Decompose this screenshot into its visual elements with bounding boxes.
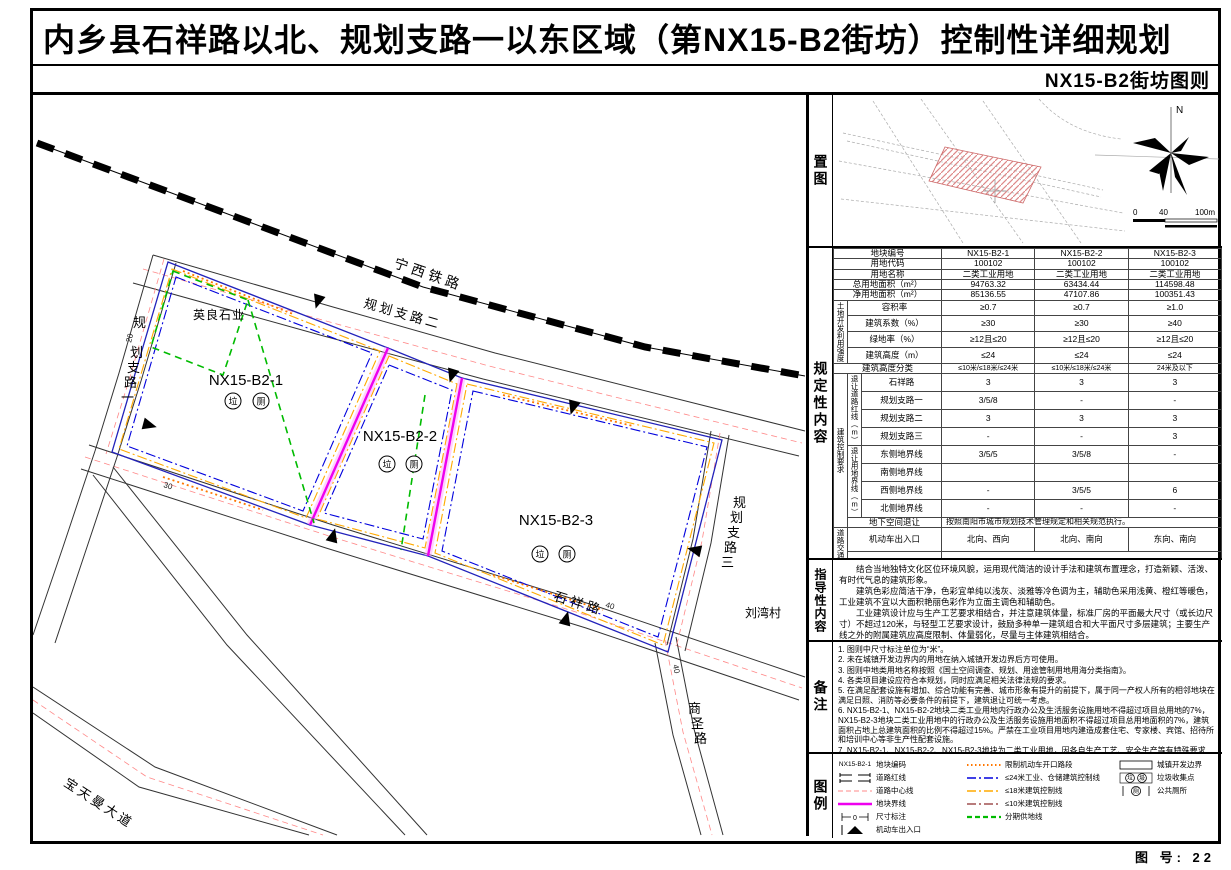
right-panel: 置图 [806, 95, 1222, 836]
table-cell: - [1035, 392, 1128, 410]
location-highlight-area [929, 147, 1041, 203]
table-cell: ≥40 [1128, 316, 1221, 332]
section-regulatory: 规定性内容 地块编号 NX15-B2-1 NX15-B2-2 NX15-B2-3 [809, 248, 1222, 560]
table-row: 建筑高度（m） ≤24 ≤24 ≤24 [834, 347, 1222, 363]
scale-bar: 0 40 100m [1133, 208, 1217, 228]
table-cell: 按照南阳市城市规划技术管理规定和相关规范执行。 [942, 552, 1222, 558]
table-cell [1128, 464, 1221, 482]
table-cell: - [942, 428, 1035, 446]
table-cell: 3/5/5 [1035, 482, 1128, 500]
table-cell: 二类工业用地 [1035, 269, 1128, 279]
table-cell: 63434.44 [1035, 280, 1128, 290]
table-cell: ≤24 [1035, 347, 1128, 363]
plot-boundary-icon [837, 801, 873, 807]
legend-item: 城镇开发边界 [1118, 758, 1220, 771]
row-label: 建筑高度分类 [834, 363, 942, 373]
row-label: 石祥路 [862, 374, 942, 392]
table-row: 建筑控制要求 退让道路红线（m） 石祥路 3 3 3 [834, 374, 1222, 392]
table-row: 停车位配建 按照南阳市城市规划技术管理规定和相关规范执行。 [834, 552, 1222, 558]
table-cell: ≤10米/≤18米/≤24米 [1035, 363, 1128, 373]
table-cell: 100102 [1128, 259, 1221, 269]
guidance-paragraph: 结合当地独特文化区位环境风貌，运用现代简洁的设计手法和建筑布置理念，打造新颖、活… [839, 564, 1216, 586]
svg-text:商: 商 [688, 701, 701, 716]
svg-text:NX15-B2-2: NX15-B2-2 [363, 428, 437, 445]
row-label: 东侧地界线 [862, 446, 942, 464]
vehicle-entrance-icon [837, 825, 873, 835]
table-row: 土地开发利用强度 容积率 ≥0.7 ≥0.7 ≥1.0 [834, 300, 1222, 316]
toilet-icon: 厕 [256, 397, 265, 407]
table-cell: 100102 [942, 259, 1035, 269]
svg-text:0: 0 [1133, 208, 1138, 217]
label-village: 刘湾村 [745, 605, 781, 620]
note-item: 6. NX15-B2-1、NX15-B2-2地块二类工业用地内行政办公及生活服务… [838, 706, 1217, 745]
regulatory-table: 地块编号 NX15-B2-1 NX15-B2-2 NX15-B2-3 用地代码 … [833, 248, 1222, 558]
subgroup-label: 退让用地界线（m） [848, 446, 862, 518]
table-cell: 100351.43 [1128, 290, 1221, 300]
section-legend: 图例 NX15-B2-1 地块编码 道路红线 [809, 754, 1222, 838]
control-line-24m-icon [966, 775, 1002, 781]
svg-text:一: 一 [121, 390, 134, 405]
table-cell: 100102 [1035, 259, 1128, 269]
table-cell: ≤10米/≤18米/≤24米 [942, 363, 1035, 373]
toilet-icon: 厕 [562, 550, 571, 560]
road-centerline-icon [837, 788, 873, 794]
table-cell: 6 [1128, 482, 1221, 500]
svg-text:规: 规 [733, 495, 746, 510]
table-cell: ≥0.7 [1035, 300, 1128, 316]
table-row: 规划支路一 3/5/8 - - [834, 392, 1222, 410]
table-cell: - [942, 500, 1035, 518]
table-row: 绿地率（%） ≥12且≤20 ≥12且≤20 ≥12且≤20 [834, 332, 1222, 348]
group-label: 道路交通设施 [834, 528, 848, 558]
table-row: 北侧地界线 - - - [834, 500, 1222, 518]
table-row: 南侧地界线 [834, 464, 1222, 482]
row-label: 用地代码 [834, 259, 942, 269]
table-row: 用地代码 100102 100102 100102 [834, 259, 1222, 269]
svg-text:规: 规 [133, 315, 146, 330]
svg-text:划: 划 [130, 345, 143, 360]
table-cell: 东向、南向 [1128, 528, 1221, 552]
table-row: 退让用地界线（m） 东侧地界线 3/5/5 3/5/8 - [834, 446, 1222, 464]
guidance-paragraph: 工业建筑设计应与生产工艺要求相结合，并注意建筑体量，标准厂房的平面最大尺寸（或长… [839, 608, 1216, 640]
table-cell: 3 [1035, 374, 1128, 392]
table-cell: 85136.55 [942, 290, 1035, 300]
row-label: 净用地面积（m²） [834, 290, 942, 300]
sheet-number: 图 号: 22 [1135, 847, 1215, 866]
trash-point-icon: 垃 [228, 396, 237, 407]
table-cell: 3/5/5 [942, 446, 1035, 464]
table-cell: ≤24 [1128, 347, 1221, 363]
section-label-legend: 图例 [809, 754, 833, 838]
table-cell [942, 464, 1035, 482]
dimension-icon: 0 [837, 812, 873, 822]
table-cell: 3 [1128, 410, 1221, 428]
table-cell: ≥12且≤20 [1035, 332, 1128, 348]
legend-item: 道路红线 [837, 771, 962, 784]
label-enterprise: 英良石业 [193, 307, 245, 322]
table-cell: NX15-B2-2 [1035, 249, 1128, 259]
table-cell: 北向、西向 [942, 528, 1035, 552]
plan-sheet: 内乡县石祥路以北、规划支路一以东区域（第NX15-B2街坊）控制性详细规划 NX… [0, 0, 1231, 870]
svg-text:路: 路 [724, 540, 737, 555]
note-item: 1. 图则中尺寸标注单位为“米”。 [838, 645, 1217, 655]
table-cell: 3 [1128, 374, 1221, 392]
legend-item: ≤24米工业、仓储建筑控制线 [966, 771, 1114, 784]
table-row: 建筑高度分类 ≤10米/≤18米/≤24米 ≤10米/≤18米/≤24米 24米… [834, 363, 1222, 373]
note-item: 2. 未在城镇开发边界内的用地在纳入城镇开发边界后方可使用。 [838, 655, 1217, 665]
legend-item: 0 尺寸标注 [837, 810, 962, 823]
section-label-notes: 备注 [809, 642, 833, 752]
table-row: 地下空间退让 按照南阳市城市规划技术管理规定和相关规范执行。 [834, 518, 1222, 528]
table-cell: ≥0.7 [942, 300, 1035, 316]
group-label: 土地开发利用强度 [834, 300, 848, 363]
table-cell: ≤24 [942, 347, 1035, 363]
table-cell: ≥30 [942, 316, 1035, 332]
section-label-regulatory: 规定性内容 [809, 248, 833, 558]
svg-text:支: 支 [127, 360, 140, 375]
section-label-location: 置图 [809, 95, 833, 246]
table-cell: 3/5/8 [942, 392, 1035, 410]
table-cell: 3 [1035, 410, 1128, 428]
table-cell: 94763.32 [942, 280, 1035, 290]
table-cell: ≥12且≤20 [1128, 332, 1221, 348]
plan-map: 宁西铁路 规划支路二 石祥路 宝天曼大道 刘湾村 英良石业 规 划 支 路 一 [33, 95, 806, 836]
subtitle-bar: NX15-B2街坊图则 [33, 66, 1218, 95]
table-row: 用地名称 二类工业用地 二类工业用地 二类工业用地 [834, 269, 1222, 279]
table-cell: 3 [942, 410, 1035, 428]
plan-map-svg: 宁西铁路 规划支路二 石祥路 宝天曼大道 刘湾村 英良石业 规 划 支 路 一 [33, 95, 806, 836]
table-cell: NX15-B2-1 [942, 249, 1035, 259]
table-cell: - [1035, 428, 1128, 446]
table-row: 地块编号 NX15-B2-1 NX15-B2-2 NX15-B2-3 [834, 249, 1222, 259]
table-cell: 3/5/8 [1035, 446, 1128, 464]
phase-supply-line-icon [966, 814, 1002, 820]
svg-text:路: 路 [124, 375, 137, 390]
north-label: N [1176, 105, 1183, 116]
svg-text:40: 40 [1159, 208, 1168, 217]
svg-text:划: 划 [730, 510, 743, 525]
sheet-frame: 内乡县石祥路以北、规划支路一以东区域（第NX15-B2街坊）控制性详细规划 NX… [30, 8, 1221, 844]
section-notes: 备注 1. 图则中尺寸标注单位为“米”。 2. 未在城镇开发边界内的用地在纳入城… [809, 642, 1222, 754]
trash-point-icon: 垃圾 [1118, 772, 1154, 784]
subgroup-label: 退让道路红线（m） [848, 374, 862, 446]
table-cell: - [1128, 392, 1221, 410]
table-cell: - [1128, 446, 1221, 464]
note-item: 7. NX15-B2-1、NX15-B2-2、NX15-B2-3地块为二类工业用… [838, 746, 1217, 753]
row-label: 总用地面积（m²） [834, 280, 942, 290]
table-cell: - [942, 482, 1035, 500]
legend-item: ≤18米建筑控制线 [966, 784, 1114, 797]
legend-item: 地块界线 [837, 797, 962, 810]
public-toilet-icon: 厕 [1118, 785, 1154, 797]
legend-item: 厕 公共厕所 [1118, 784, 1220, 797]
note-item: 5. 在满足配套设施有增加、综合功能有完善、城市形象有提升的前提下，属于同一产权… [838, 686, 1217, 706]
legend-item: 限制机动车开口路段 [966, 758, 1114, 771]
table-cell: ≥30 [1035, 316, 1128, 332]
compass-rose: N [1133, 105, 1209, 195]
svg-text:NX15-B2-3: NX15-B2-3 [519, 512, 593, 529]
table-row: 规划支路二 3 3 3 [834, 410, 1222, 428]
row-label: 北侧地界线 [862, 500, 942, 518]
row-label: 规划支路三 [862, 428, 942, 446]
title-bar: 内乡县石祥路以北、规划支路一以东区域（第NX15-B2街坊）控制性详细规划 [33, 11, 1218, 66]
row-label: 建筑高度（m） [848, 347, 942, 363]
table-row: 道路交通设施 机动车出入口 北向、西向 北向、南向 东向、南向 [834, 528, 1222, 552]
svg-text:三: 三 [721, 555, 734, 570]
table-row: 净用地面积（m²） 85136.55 47107.86 100351.43 [834, 290, 1222, 300]
page-subtitle: NX15-B2街坊图则 [1045, 66, 1210, 93]
section-label-guidance: 指导性内容 [809, 560, 833, 640]
legend-item: 垃圾 垃圾收集点 [1118, 771, 1220, 784]
svg-text:NX15-B2-1: NX15-B2-1 [209, 372, 283, 389]
control-line-18m-icon [966, 788, 1002, 794]
trash-point-icon: 垃 [382, 459, 391, 470]
row-label: 建筑系数（%） [848, 316, 942, 332]
row-label: 规划支路一 [862, 392, 942, 410]
row-label: 地下空间退让 [848, 518, 942, 528]
row-label: 停车位配建 [848, 552, 942, 558]
table-cell: - [1128, 500, 1221, 518]
table-row: 总用地面积（m²） 94763.32 63434.44 114598.48 [834, 280, 1222, 290]
svg-text:100m: 100m [1195, 208, 1215, 217]
svg-text:圾: 圾 [1139, 774, 1145, 782]
table-cell: 3 [942, 374, 1035, 392]
table-cell: ≥1.0 [1128, 300, 1221, 316]
table-cell: - [1035, 500, 1128, 518]
location-map-svg: N [833, 95, 1221, 246]
svg-text:圣: 圣 [691, 716, 704, 731]
toilet-icon: 厕 [409, 460, 418, 470]
table-cell: 按照南阳市城市规划技术管理规定和相关规范执行。 [942, 518, 1222, 528]
road-redline-icon [837, 773, 873, 783]
legend-item: NX15-B2-1 地块编码 [837, 758, 962, 771]
group-label: 建筑控制要求 [834, 374, 848, 528]
table-cell: ≥12且≤20 [942, 332, 1035, 348]
section-location: 置图 [809, 95, 1222, 248]
page-title: 内乡县石祥路以北、规划支路一以东区域（第NX15-B2街坊）控制性详细规划 [43, 15, 1172, 61]
svg-text:厕: 厕 [1133, 788, 1139, 795]
plot-code-symbol: NX15-B2-1 [837, 761, 873, 768]
table-cell: 北向、南向 [1035, 528, 1128, 552]
note-item: 3. 图则中地类用地名称按照《国土空间调查、规划、用途管制用地用海分类指南》。 [838, 666, 1217, 676]
table-cell: NX15-B2-3 [1128, 249, 1221, 259]
row-label: 机动车出入口 [848, 528, 942, 552]
note-item: 4. 各类项目建设应符合本规划，同时应满足相关法律法规的要求。 [838, 676, 1217, 686]
row-label: 规划支路二 [862, 410, 942, 428]
section-guidance: 指导性内容 结合当地独特文化区位环境风貌，运用现代简洁的设计手法和建筑布置理念，… [809, 560, 1222, 642]
row-label: 西侧地界线 [862, 482, 942, 500]
table-cell: 二类工业用地 [942, 269, 1035, 279]
table-cell: 二类工业用地 [1128, 269, 1221, 279]
table-cell: 47107.86 [1035, 290, 1128, 300]
svg-text:0: 0 [853, 815, 857, 822]
row-label: 容积率 [848, 300, 942, 316]
table-row: 规划支路三 - - 3 [834, 428, 1222, 446]
legend-item: 机动车出入口 [837, 823, 962, 836]
restricted-opening-icon [966, 762, 1002, 768]
table-row: 西侧地界线 - 3/5/5 6 [834, 482, 1222, 500]
row-label: 绿地率（%） [848, 332, 942, 348]
row-label: 用地名称 [834, 269, 942, 279]
guidance-paragraph: 建筑色彩应简洁干净，色彩宜单纯以浅灰、淡雅等冷色调为主，辅助色采用浅黄、橙红等暖… [839, 586, 1216, 608]
legend-item: 道路中心线 [837, 784, 962, 797]
table-cell: 24米及以下 [1128, 363, 1221, 373]
table-cell: 114598.48 [1128, 280, 1221, 290]
trash-point-icon: 垃 [535, 549, 544, 560]
table-cell: 3 [1128, 428, 1221, 446]
legend-item: ≤10米建筑控制线 [966, 797, 1114, 810]
table-cell [1035, 464, 1128, 482]
row-label: 南侧地界线 [862, 464, 942, 482]
svg-text:支: 支 [727, 525, 740, 540]
svg-text:路: 路 [694, 731, 707, 746]
legend-item: 分期供地线 [966, 810, 1114, 823]
urban-boundary-icon [1118, 760, 1154, 770]
row-label: 地块编号 [834, 249, 942, 259]
control-line-10m-icon [966, 801, 1002, 807]
table-row: 建筑系数（%） ≥30 ≥30 ≥40 [834, 316, 1222, 332]
svg-text:垃: 垃 [1127, 774, 1133, 782]
